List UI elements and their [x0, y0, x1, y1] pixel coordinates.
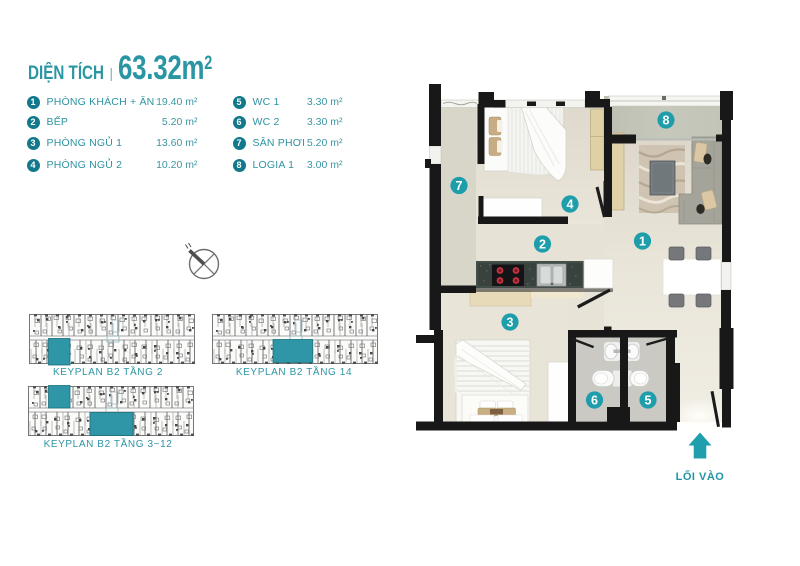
svg-text:8: 8 [663, 114, 670, 128]
svg-text:1: 1 [639, 235, 646, 249]
svg-text:2: 2 [539, 238, 546, 252]
svg-text:LỐI VÀO: LỐI VÀO [676, 469, 725, 483]
svg-text:6: 6 [591, 394, 598, 408]
svg-text:7: 7 [456, 179, 463, 193]
svg-text:3: 3 [507, 316, 514, 330]
svg-text:5: 5 [645, 394, 652, 408]
svg-text:4: 4 [567, 198, 574, 212]
